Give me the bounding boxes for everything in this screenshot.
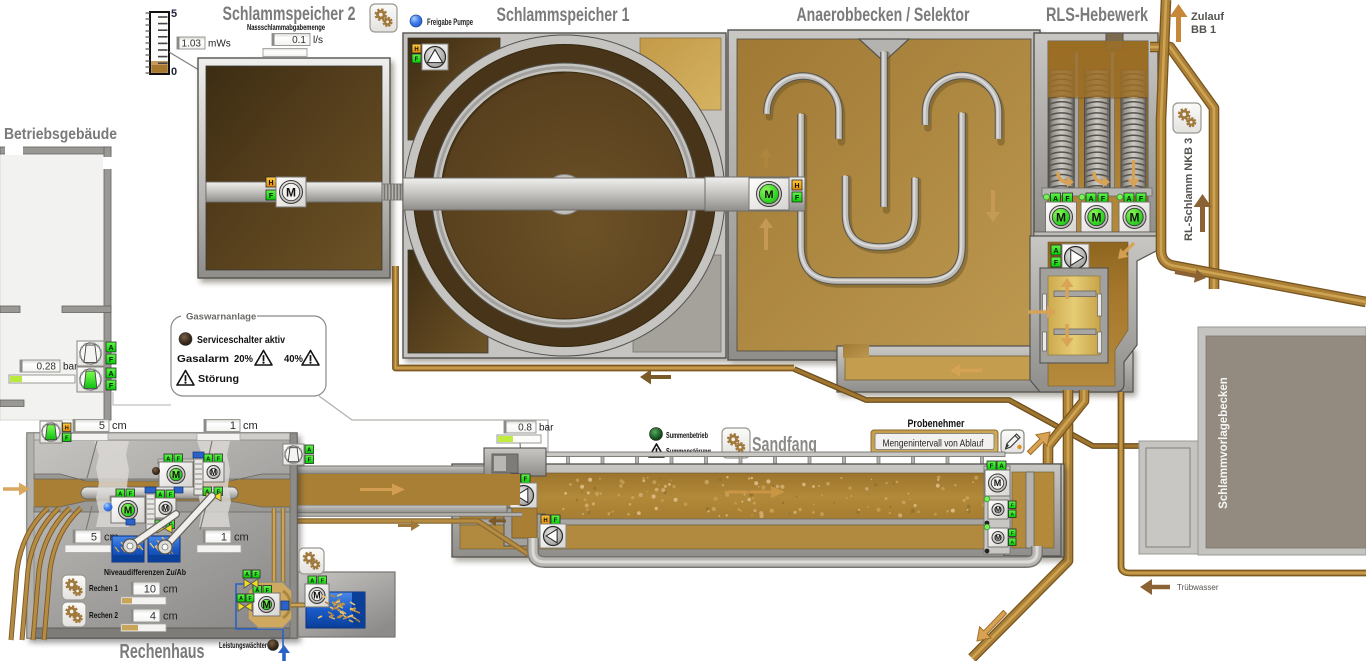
svg-text:A: A xyxy=(108,371,113,378)
svg-text:H: H xyxy=(543,518,547,524)
svg-text:Leistungswächter: Leistungswächter xyxy=(219,641,267,650)
svg-text:Serviceschalter aktiv: Serviceschalter aktiv xyxy=(197,334,285,346)
svg-text:cm: cm xyxy=(234,532,249,544)
svg-text:10: 10 xyxy=(144,584,156,596)
svg-text:Schlammvorlagebecken: Schlammvorlagebecken xyxy=(1218,377,1230,509)
svg-text:H: H xyxy=(794,183,799,190)
svg-text:M: M xyxy=(313,591,321,601)
svg-text:cm: cm xyxy=(163,611,178,623)
svg-text:1: 1 xyxy=(221,532,227,544)
svg-text:0.8: 0.8 xyxy=(518,423,532,434)
svg-text:F: F xyxy=(1011,503,1014,508)
svg-text:0.28: 0.28 xyxy=(37,362,57,373)
svg-text:M: M xyxy=(172,470,180,481)
svg-text:F: F xyxy=(554,518,558,524)
svg-text:M: M xyxy=(1056,210,1066,224)
svg-text:Schlammspeicher 1: Schlammspeicher 1 xyxy=(497,5,630,26)
svg-text:A: A xyxy=(245,572,249,578)
svg-text:Rechen 1: Rechen 1 xyxy=(89,583,118,593)
svg-text:A: A xyxy=(999,464,1004,470)
svg-text:A: A xyxy=(108,345,113,352)
svg-text:A: A xyxy=(239,596,243,602)
svg-text:cm: cm xyxy=(112,420,127,432)
svg-text:H: H xyxy=(414,47,418,53)
svg-text:BB 1: BB 1 xyxy=(1191,24,1216,36)
svg-text:5: 5 xyxy=(99,420,105,432)
svg-text:F: F xyxy=(109,383,114,390)
svg-text:cm: cm xyxy=(163,584,178,596)
svg-text:1.03: 1.03 xyxy=(182,39,202,50)
svg-text:A: A xyxy=(1053,248,1058,255)
svg-text:M: M xyxy=(995,507,1001,514)
svg-text:20%: 20% xyxy=(234,353,254,365)
svg-text:cm: cm xyxy=(243,420,258,432)
svg-text:M: M xyxy=(286,185,296,199)
svg-text:Betriebsgebäude: Betriebsgebäude xyxy=(4,126,117,143)
svg-text:M: M xyxy=(162,504,169,513)
svg-text:F: F xyxy=(254,572,257,578)
svg-text:F: F xyxy=(795,195,800,202)
svg-text:5: 5 xyxy=(91,532,97,544)
svg-text:M: M xyxy=(1092,210,1102,224)
svg-text:5: 5 xyxy=(171,8,177,20)
svg-text:M: M xyxy=(764,189,773,201)
svg-text:F: F xyxy=(248,596,251,602)
svg-text:M: M xyxy=(262,600,270,611)
svg-text:M: M xyxy=(210,468,217,477)
svg-text:Freigabe Pumpe: Freigabe Pumpe xyxy=(427,17,473,27)
svg-text:0: 0 xyxy=(171,66,177,78)
svg-text:M: M xyxy=(995,535,1001,542)
svg-text:0.1: 0.1 xyxy=(292,35,306,46)
svg-text:40%: 40% xyxy=(284,353,304,365)
svg-text:mWs: mWs xyxy=(208,39,231,50)
svg-text:Zulauf: Zulauf xyxy=(1191,11,1224,23)
svg-text:bar: bar xyxy=(63,362,78,373)
svg-text:Niveaudifferenzen Zu/Ab: Niveaudifferenzen Zu/Ab xyxy=(104,567,186,577)
svg-text:Mengenintervall von Ablauf: Mengenintervall von Ablauf xyxy=(883,438,984,450)
svg-text:Gasalarm: Gasalarm xyxy=(177,353,229,365)
svg-text:4: 4 xyxy=(150,611,156,623)
svg-text:F: F xyxy=(1011,531,1014,536)
svg-text:Rechenhaus: Rechenhaus xyxy=(120,641,205,661)
svg-text:RLS-Hebewerk: RLS-Hebewerk xyxy=(1046,5,1148,26)
svg-text:Anaerobbecken / Selektor: Anaerobbecken / Selektor xyxy=(797,5,970,26)
svg-text:H: H xyxy=(65,426,69,432)
svg-text:bar: bar xyxy=(539,423,554,434)
svg-text:F: F xyxy=(1054,260,1059,267)
svg-text:M: M xyxy=(1130,210,1140,224)
svg-text:F: F xyxy=(990,464,994,470)
svg-text:A: A xyxy=(307,448,311,454)
svg-text:l/s: l/s xyxy=(313,35,323,46)
svg-text:RL-Schlamm NKB 3: RL-Schlamm NKB 3 xyxy=(1183,138,1195,241)
svg-text:H: H xyxy=(268,180,273,187)
svg-text:F: F xyxy=(109,357,114,364)
svg-text:M: M xyxy=(124,506,132,517)
svg-text:Summenbetrieb: Summenbetrieb xyxy=(666,430,708,440)
svg-text:1: 1 xyxy=(230,420,236,432)
svg-text:Nassschlammabgabemenge: Nassschlammabgabemenge xyxy=(247,22,325,32)
svg-text:F: F xyxy=(415,57,419,63)
svg-text:F: F xyxy=(269,193,274,200)
svg-text:Trübwasser: Trübwasser xyxy=(1177,583,1219,592)
svg-text:M: M xyxy=(994,478,1002,488)
svg-text:F: F xyxy=(524,477,528,483)
svg-text:Rechen 2: Rechen 2 xyxy=(89,610,118,620)
svg-text:Probenehmer: Probenehmer xyxy=(908,418,966,430)
svg-text:Störung: Störung xyxy=(198,373,239,385)
svg-text:Gaswarnanlage: Gaswarnanlage xyxy=(186,312,256,323)
